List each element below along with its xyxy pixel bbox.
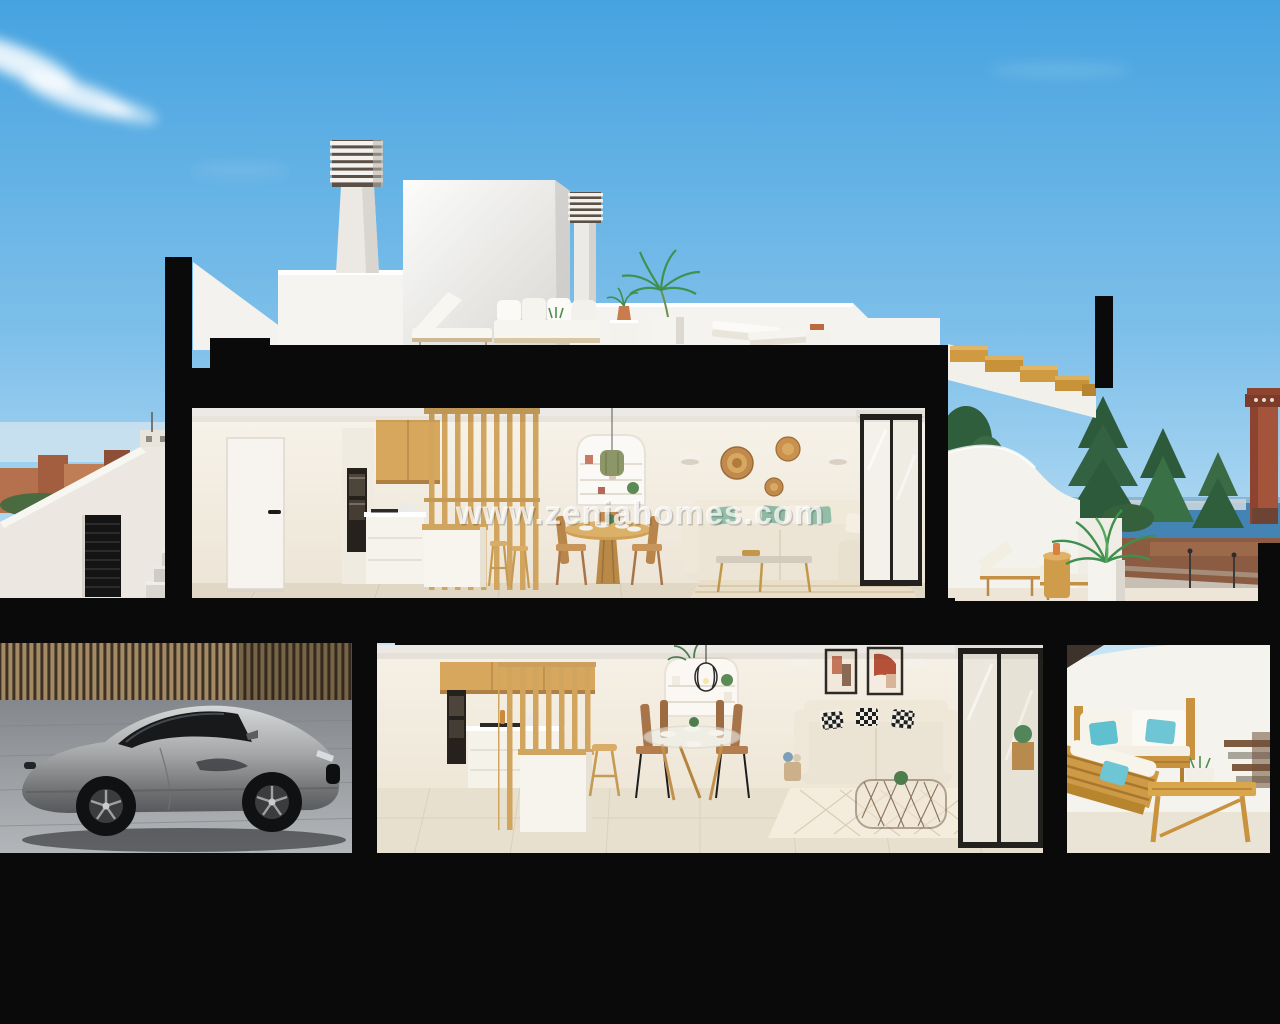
cut-right-frame — [1258, 543, 1280, 643]
cut-ground-right-wall — [1043, 639, 1067, 855]
render-stage: www.zeniahomes.com www.zeniahomes.com — [0, 0, 1280, 1024]
sliding-door — [955, 645, 1045, 848]
cut-roof-slab — [192, 338, 948, 408]
cut-mid-slab-right — [948, 601, 1280, 645]
console-plant-icon — [1014, 725, 1032, 743]
pot-icon — [400, 503, 415, 512]
cut-left-column — [165, 257, 192, 643]
cooktop-icon — [371, 509, 398, 513]
villa-cutaway-render: www.zeniahomes.com www.zeniahomes.com — [0, 0, 1280, 1024]
ground-floor-interior — [377, 640, 1045, 855]
side-basket-icon — [783, 752, 801, 781]
louvered-gate-icon — [82, 515, 121, 597]
roof-parapet-left — [278, 270, 408, 350]
cut-base-slab — [0, 853, 1280, 1024]
kitchen-island — [424, 527, 486, 587]
ground-patio — [1054, 628, 1280, 855]
cut-mid-slab-center — [395, 598, 955, 645]
cut-upper-right-wall — [925, 400, 948, 603]
hallway-door — [227, 438, 284, 592]
console-icon — [1012, 742, 1034, 770]
cut-mid-slab-left — [0, 598, 400, 643]
ground-sofa — [794, 700, 958, 784]
cut-garage-wall — [352, 598, 377, 855]
door-handle-icon — [268, 510, 281, 514]
watermark-text: www.zeniahomes.com — [455, 494, 825, 531]
roof-sofa-icon — [494, 298, 600, 343]
sliding-door — [856, 410, 926, 586]
kitchen-island — [520, 752, 592, 832]
car-wheel-icon — [242, 772, 302, 832]
watermark: www.zeniahomes.com www.zeniahomes.com — [455, 494, 826, 533]
pendant-lamp-icon — [600, 450, 624, 476]
cut-right-edge — [1270, 639, 1280, 855]
cut-stair-wall — [1095, 296, 1113, 388]
watchtower-icon — [1245, 388, 1280, 524]
garage — [0, 632, 370, 855]
car-wheel-icon — [76, 776, 136, 836]
wire-coffee-table-icon — [856, 771, 946, 828]
